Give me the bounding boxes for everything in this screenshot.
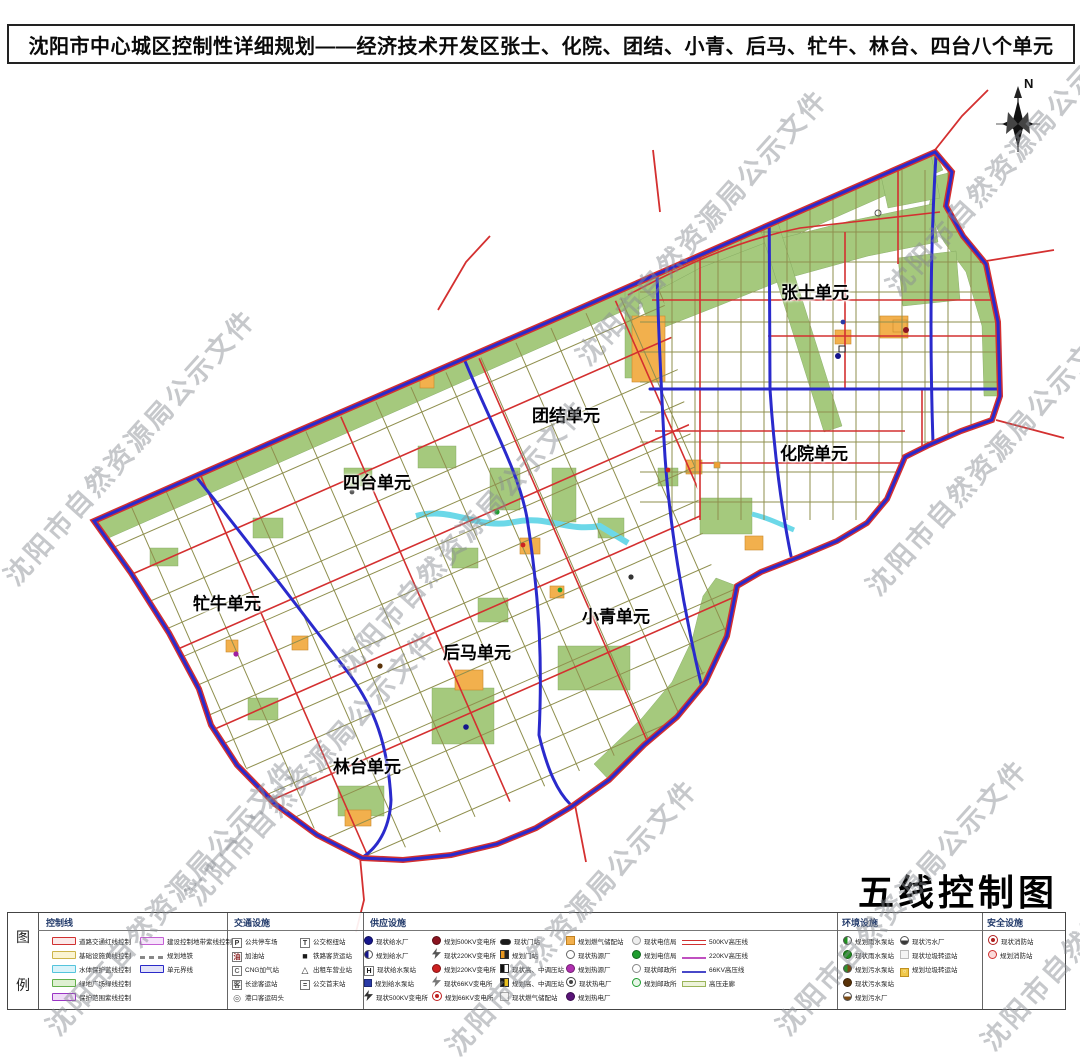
legend-cir-icon	[566, 964, 575, 973]
legend-chip-icon	[52, 965, 76, 973]
legend-vsplit-icon	[500, 950, 509, 959]
legend-header-safety: 安全设施	[987, 916, 1023, 929]
legend-dline-icon	[682, 940, 706, 945]
legend-item: 现状燃气储配站	[500, 990, 564, 1004]
legend-group-control-b: 建设控制地带紫线控制规划地铁单元界线	[140, 934, 232, 976]
legend-cir-icon	[364, 936, 373, 945]
legend-cirh-icon	[364, 950, 373, 959]
legend-cirb-icon	[900, 936, 909, 945]
legend-bolt-icon	[432, 976, 441, 987]
north-arrow	[996, 86, 1040, 152]
page-title: 沈阳市中心城区控制性详细规划——经济技术开发区张士、化院、团结、小青、后马、牤牛…	[29, 30, 1054, 59]
legend-chip-icon	[52, 937, 76, 945]
legend-ring-icon	[988, 950, 997, 959]
boundary-blue-line	[94, 152, 1000, 860]
legend-cirh-icon	[843, 964, 852, 973]
legend-ring-icon	[566, 950, 575, 959]
legend-line-icon	[682, 957, 706, 959]
title-bar: 沈阳市中心城区控制性详细规划——经济技术开发区张士、化院、团结、小青、后马、牤牛…	[7, 24, 1075, 64]
legend-sqo-icon	[500, 992, 509, 1001]
legend-group-supply-e: 现状电信局规划电信局现状邮政所规划邮政所	[632, 934, 677, 990]
orange-blocks	[226, 316, 908, 826]
legend-cirh-icon	[843, 936, 852, 945]
legend-item: ○规划垃圾转运站	[900, 962, 958, 976]
legend-item: 现状门站	[500, 934, 564, 948]
legend-item: 保护范围紫线控制	[52, 990, 131, 1004]
planning-map-page: { "title": "沈阳市中心城区控制性详细规划——经济技术开发区张士、化院…	[0, 0, 1080, 1033]
legend-cir-icon	[432, 936, 441, 945]
legend-header-environment: 环境设施	[842, 916, 878, 929]
legend-bolt-icon	[364, 990, 373, 1001]
legend-dash-icon	[140, 956, 164, 959]
legend-chip-icon	[140, 937, 164, 945]
legend-chr-icon: ◎	[232, 993, 242, 1003]
legend-vsplit-icon	[500, 978, 509, 987]
legend-chip-icon	[52, 951, 76, 959]
legend-cirb-icon	[843, 992, 852, 1001]
legend-band-icon	[682, 981, 706, 987]
legend-group-control-a: 道路交通红线控制基础设施黄线控制水体保护蓝线控制绿地广场绿线控制保护范围紫线控制	[52, 934, 131, 1004]
legend-separator	[837, 913, 838, 1009]
legend-vsplit-icon	[500, 964, 509, 973]
legend-chip-icon	[52, 979, 76, 987]
legend-chip-icon	[140, 965, 164, 973]
legend-group-supply-b: 规划500KV变电所现状220KV变电所规划220KV变电所现状66KV变电所规…	[432, 934, 496, 1004]
legend-group-traffic-a: P公共停车场油加油站CCNG加气站客长途客运站◎港口客运码头	[232, 934, 284, 1004]
legend-separator	[982, 913, 983, 1009]
legend-cir-icon	[432, 964, 441, 973]
map-sheet-title: 五线控制图	[858, 864, 1058, 916]
green-areas	[94, 150, 1000, 816]
legend-header-control: 控制线	[46, 916, 73, 929]
legend-group-supply-f: 500KV高压线220KV高压线66KV高压线高压走廊	[682, 934, 748, 990]
map-area: 张士单元化院单元团结单元四台单元牤牛单元小青单元后马单元林台单元 N 五线控制图	[0, 0, 1080, 1033]
legend-group-env-b: 现状污水厂现状垃圾转运站○规划垃圾转运站	[900, 934, 958, 976]
legend-item: 现状220KV变电所	[432, 948, 496, 962]
legend-item: 规划热电厂	[566, 990, 624, 1004]
legend-item: 单元界线	[140, 962, 232, 976]
legend-sqo-icon	[566, 936, 575, 945]
legend-group-env-a: 规划雨水泵站现状雨水泵站规划污水泵站现状污水泵站规划污水厂	[843, 934, 894, 1004]
legend-caption-top: 图	[16, 927, 30, 947]
legend-ring-icon	[632, 936, 641, 945]
legend-line-icon	[682, 971, 706, 973]
legend-target-icon	[566, 977, 576, 987]
legend-item: 规划高、中调压站	[500, 976, 564, 990]
legend-group-safety: 现状消防站规划消防站	[988, 934, 1034, 962]
legend-item: 规划220KV变电所	[432, 962, 496, 976]
legend-sqc-icon: =	[300, 980, 310, 990]
legend-ring-icon	[632, 964, 641, 973]
legend-header-supply: 供应设施	[370, 916, 406, 929]
legend-item: 规划给水泵站	[364, 976, 428, 990]
legend-item: 现状500KV变电所	[364, 990, 428, 1004]
legend-bolt-icon	[432, 948, 441, 959]
legend-item: 规划邮政所	[632, 976, 677, 990]
legend-item: H现状给水泵站	[364, 962, 428, 976]
legend-item: 规划66KV变电所	[432, 990, 496, 1004]
legend-rrect-icon	[500, 939, 511, 945]
legend-group-supply-a: 现状给水厂规划给水厂H现状给水泵站规划给水泵站现状500KV变电所	[364, 934, 428, 1004]
legend-group-traffic-b: T公交枢纽站■铁路客货运站△出租车营业站=公交首末站	[300, 934, 352, 990]
legend-caption: 图 例	[8, 913, 39, 1009]
legend-ring-icon	[632, 978, 641, 987]
legend: 图 例 控制线 交通设施 供应设施 环境设施 安全设施 道路交通红线控制基础设施…	[7, 912, 1066, 1010]
legend-cir-icon	[632, 950, 641, 959]
legend-item: ◎港口客运码头	[232, 990, 284, 1004]
legend-item: 现状给水厂	[364, 934, 428, 948]
legend-sqo-icon	[900, 950, 909, 959]
legend-cir-icon	[843, 978, 852, 987]
legend-target-icon	[988, 935, 998, 945]
legend-header-traffic: 交通设施	[234, 916, 270, 929]
legend-chip-icon	[52, 993, 76, 1001]
legend-item: 现状高、中调压站	[500, 962, 564, 976]
legend-caption-bottom: 例	[16, 975, 30, 995]
legend-item: 高压走廊	[682, 976, 748, 990]
legend-group-supply-c: 现状门站规划门站现状高、中调压站规划高、中调压站现状燃气储配站	[500, 934, 564, 1004]
legend-sqo-icon: ○	[900, 968, 909, 977]
legend-cir-icon	[566, 992, 575, 1001]
legend-item: 规划消防站	[988, 948, 1034, 962]
legend-cir-icon	[843, 950, 852, 959]
legend-target-icon	[432, 991, 442, 1001]
north-label: N	[1024, 76, 1033, 91]
legend-sq-icon	[364, 979, 372, 987]
legend-item: 规划门站	[500, 948, 564, 962]
legend-group-supply-d: 规划燃气储配站现状热源厂规划热源厂现状热电厂规划热电厂	[566, 934, 624, 1004]
legend-item: 规划污水厂	[843, 990, 894, 1004]
legend-header-rule	[38, 930, 1065, 931]
legend-item: 规划500KV变电所	[432, 934, 496, 948]
legend-item: =公交首末站	[300, 976, 352, 990]
